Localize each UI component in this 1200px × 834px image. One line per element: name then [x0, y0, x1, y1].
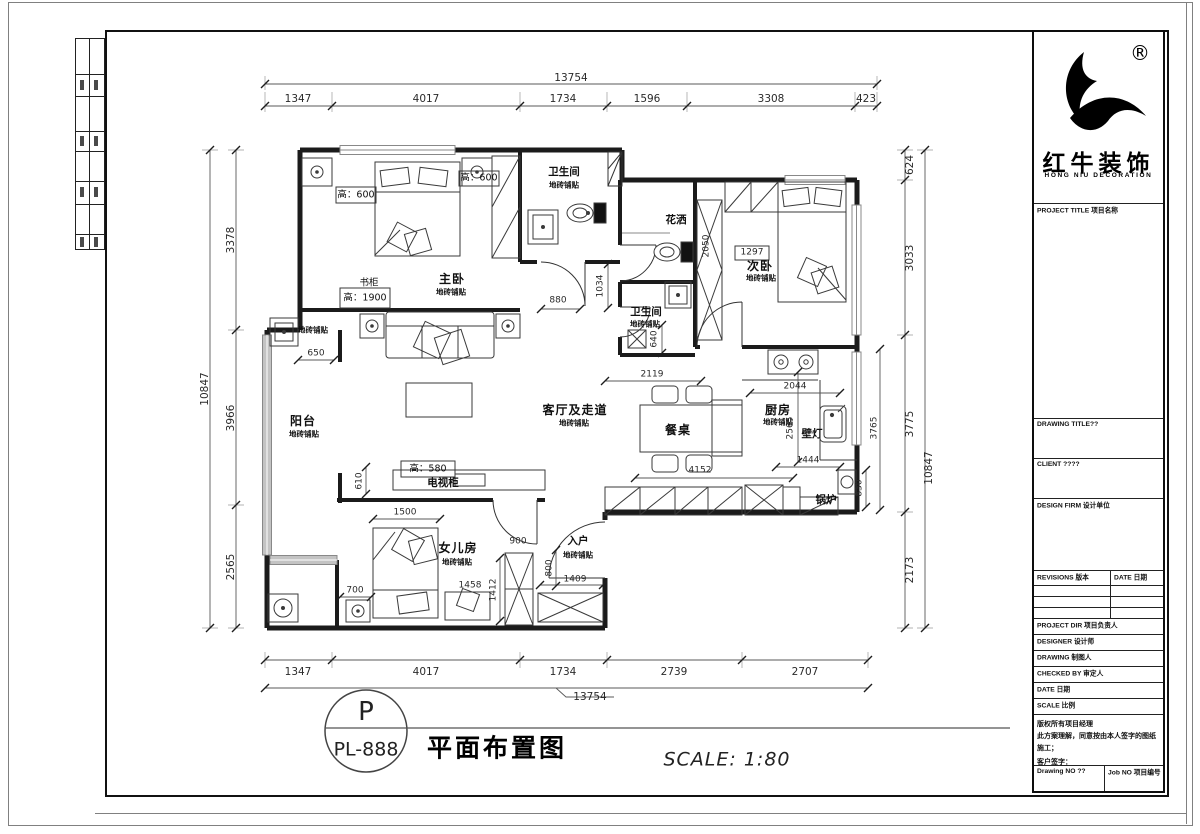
- label-boiler: 锅炉: [816, 495, 837, 506]
- dim-top-6: 423: [856, 94, 876, 105]
- room-daughter-tile: 地砖铺贴: [442, 558, 472, 566]
- tb-note: 版权所有项目经理 此方案理解，同意按由本人签字的图纸施工； 客户签字：: [1034, 714, 1163, 765]
- tb-drawing: DRAWING 制图人: [1037, 653, 1092, 663]
- dim-1409: 1409: [564, 576, 587, 585]
- dim-830: 830: [856, 479, 865, 496]
- tb-revisions: REVISIONS 版本: [1037, 573, 1089, 583]
- exterior-walls: [267, 150, 857, 628]
- label-lamp: 壁灯: [802, 429, 823, 440]
- tb-date: DATE 日期: [1037, 685, 1070, 695]
- dim-1034: 1034: [597, 275, 606, 298]
- dim-2050: 2050: [703, 235, 712, 258]
- label-corner-tile: 地砖铺贴: [298, 326, 328, 334]
- dim-1500: 1500: [394, 509, 417, 518]
- dim-right-3: 3775: [905, 411, 916, 438]
- dim-700: 700: [346, 587, 363, 596]
- room-bath2-tile: 地砖铺贴: [630, 320, 660, 328]
- room-second-tile: 地砖铺贴: [746, 274, 776, 282]
- dim-bottom-overall: 13754: [573, 692, 606, 703]
- dim-right-4: 2173: [905, 557, 916, 584]
- label-h1900: 高：1900: [343, 293, 386, 303]
- room-entry: 入户: [568, 536, 589, 547]
- dim-bottom-4: 2739: [661, 667, 688, 678]
- room-bath1: 卫生间: [548, 167, 580, 178]
- dim-650: 650: [307, 350, 324, 359]
- brand-logo-icon: ®: [1034, 32, 1163, 142]
- label-tv-cabinet: 电视柜: [427, 478, 459, 489]
- dim-left-2: 3966: [226, 405, 237, 432]
- tb-checked-by: CHECKED BY 审定人: [1037, 669, 1103, 679]
- dim-1444: 1444: [797, 457, 820, 466]
- dim-1297: 1297: [741, 249, 764, 258]
- drawing-sheet: 13754 1347 4017 1734 1596 3308 423 1347 …: [0, 0, 1200, 834]
- tb-drawing-title: DRAWING TITLE??: [1037, 421, 1098, 428]
- room-kitchen-tile: 地砖铺贴: [763, 418, 793, 426]
- dim-4152: 4152: [689, 467, 712, 476]
- dim-top-1: 1347: [285, 94, 312, 105]
- dim-1458: 1458: [459, 582, 482, 591]
- dim-bottom-5: 2707: [792, 667, 819, 678]
- room-second: 次卧: [747, 260, 773, 272]
- room-bath1-tile: 地砖铺贴: [549, 181, 579, 189]
- logo-panel: ® 红牛装饰 HONG NIU DECORATION: [1034, 32, 1163, 203]
- tb-design-firm: DESIGN FIRM 设计单位: [1037, 501, 1110, 511]
- dim-top-2: 4017: [413, 94, 440, 105]
- interior-walls: [267, 150, 857, 628]
- dim-bottom-2: 4017: [413, 667, 440, 678]
- dim-640: 640: [651, 330, 660, 347]
- dim-bottom-1: 1347: [285, 667, 312, 678]
- dim-left-overall: 10847: [200, 372, 211, 405]
- floor-plan-canvas: [0, 0, 1200, 834]
- brand-name-en: HONG NIU DECORATION: [1034, 172, 1163, 179]
- room-shower: 花洒: [666, 215, 687, 226]
- dim-right-1: 624: [905, 155, 916, 175]
- dim-900: 900: [509, 538, 526, 547]
- dim-right-2: 3033: [905, 245, 916, 272]
- tb-project-title: PROJECT TITLE 项目名称: [1037, 206, 1118, 216]
- dim-2044: 2044: [784, 383, 807, 392]
- doors: [493, 245, 742, 578]
- label-h580: 高：580: [409, 464, 446, 474]
- label-bookcase: 书柜: [359, 278, 378, 288]
- tb-drawing-no: Drawing NO ??: [1037, 768, 1086, 775]
- tb-project-dir: PROJECT DIR 项目负责人: [1037, 621, 1118, 631]
- room-master: 主卧: [439, 273, 465, 285]
- label-h600-right: 高：600: [460, 173, 497, 183]
- label-dining-table: 餐桌: [665, 424, 691, 436]
- label-h600-left: 高：600: [337, 190, 374, 200]
- dim-top-4: 1596: [634, 94, 661, 105]
- room-balcony-tile: 地砖铺贴: [289, 430, 319, 438]
- tb-note-line1: 版权所有项目经理: [1037, 719, 1160, 731]
- dim-left-3: 2565: [226, 554, 237, 581]
- room-living-tile: 地砖铺贴: [559, 419, 589, 427]
- footer-tag-code: PL-888: [334, 741, 399, 760]
- dim-610: 610: [356, 472, 365, 489]
- tb-scale: SCALE 比例: [1037, 701, 1075, 711]
- dim-880: 880: [549, 297, 566, 306]
- room-daughter: 女儿房: [438, 542, 477, 554]
- scale-text: SCALE: 1:80: [663, 751, 790, 770]
- room-living: 客厅及走道: [542, 404, 607, 416]
- room-bath2: 卫生间: [630, 307, 662, 318]
- tb-job-no: Job NO 项目编号: [1108, 768, 1161, 778]
- dim-1412: 1412: [490, 579, 499, 602]
- room-kitchen: 厨房: [765, 404, 791, 416]
- title-block: ® 红牛装饰 HONG NIU DECORATION PROJECT TITLE…: [1032, 30, 1165, 793]
- dim-left-1: 3378: [226, 227, 237, 254]
- dim-top-5: 3308: [758, 94, 785, 105]
- dim-800: 800: [546, 559, 555, 576]
- dim-2119: 2119: [641, 371, 664, 380]
- dim-top-3: 1734: [550, 94, 577, 105]
- room-balcony: 阳台: [290, 415, 316, 427]
- tb-client: CLIENT ????: [1037, 461, 1080, 468]
- dim-right-overall: 10847: [924, 451, 935, 484]
- room-master-tile: 地砖铺贴: [436, 288, 466, 296]
- tb-date-col: DATE 日期: [1114, 573, 1147, 583]
- footer-tag-letter: P: [358, 699, 374, 725]
- room-entry-tile: 地砖铺贴: [563, 551, 593, 559]
- dim-top-overall: 13754: [554, 73, 587, 84]
- dim-3765: 3765: [871, 417, 880, 440]
- dim-bottom-3: 1734: [550, 667, 577, 678]
- registered-mark: ®: [1130, 41, 1150, 65]
- drawing-name: 平面布置图: [427, 736, 567, 761]
- tb-note-line2: 此方案理解，同意按由本人签字的图纸施工；: [1037, 731, 1160, 755]
- tb-designer: DESIGNER 设计师: [1037, 637, 1094, 647]
